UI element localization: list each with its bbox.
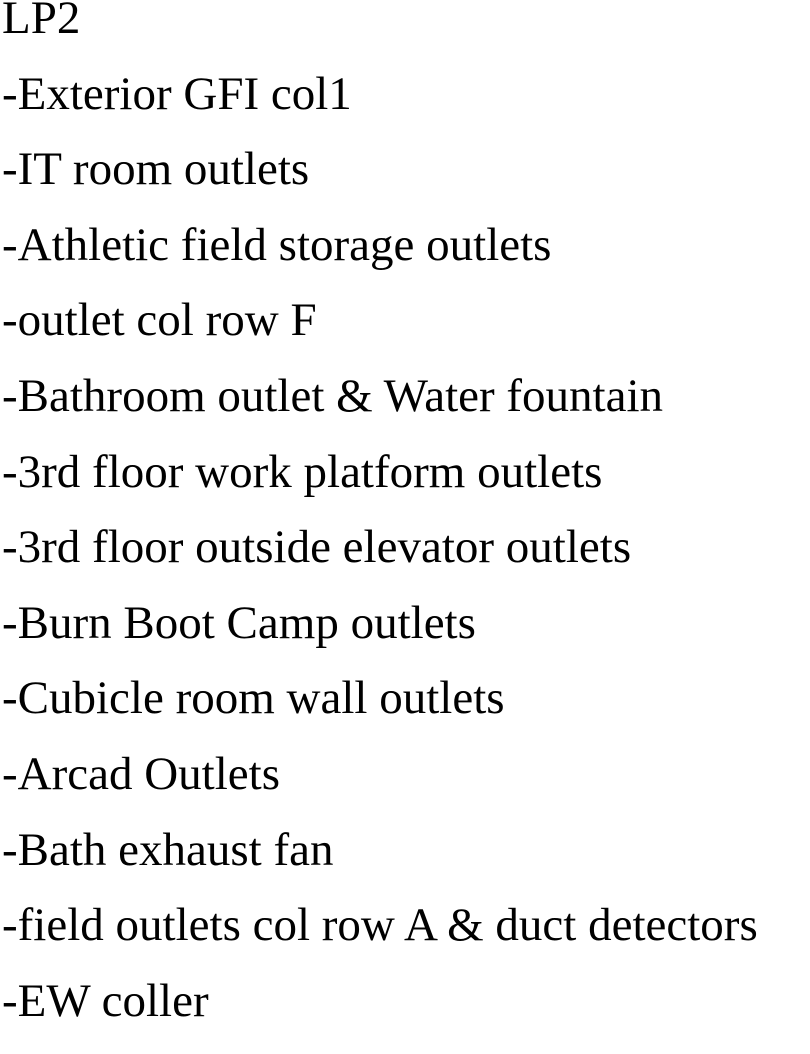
- panel-list-item: -Burn Boot Camp outlets: [2, 586, 808, 662]
- panel-list-item: -field outlets col row A & duct detector…: [2, 888, 808, 964]
- panel-list-item: -3rd floor outside elevator outlets: [2, 510, 808, 586]
- panel-list-item: -3rd floor work platform outlets: [2, 435, 808, 511]
- panel-list-item: -Arcad Outlets: [2, 737, 808, 813]
- panel-list-item: -Exterior GFI col1: [2, 57, 808, 133]
- panel-list-item: -outlet col row F: [2, 283, 808, 359]
- panel-list-item: -Athletic field storage outlets: [2, 208, 808, 284]
- panel-title: LP2: [2, 0, 808, 57]
- panel-list-item: -IT room outlets: [2, 132, 808, 208]
- panel-list-item: -Cubicle room wall outlets: [2, 661, 808, 737]
- panel-list-item: -Bath exhaust fan: [2, 813, 808, 889]
- document-page: LP2 -Exterior GFI col1 -IT room outlets …: [2, 0, 808, 1039]
- panel-list-item: -Bathroom outlet & Water fountain: [2, 359, 808, 435]
- panel-list-item: -EW coller: [2, 964, 808, 1040]
